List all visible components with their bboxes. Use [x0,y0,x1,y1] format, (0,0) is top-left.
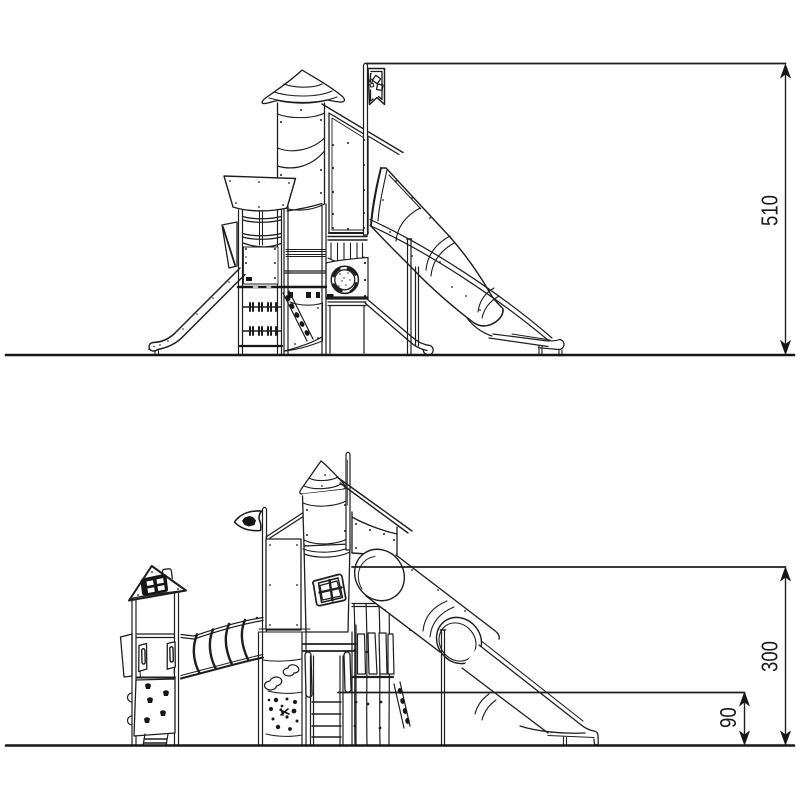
svg-text:90: 90 [716,707,742,728]
svg-text:300: 300 [758,641,784,672]
svg-text:510: 510 [758,195,784,226]
